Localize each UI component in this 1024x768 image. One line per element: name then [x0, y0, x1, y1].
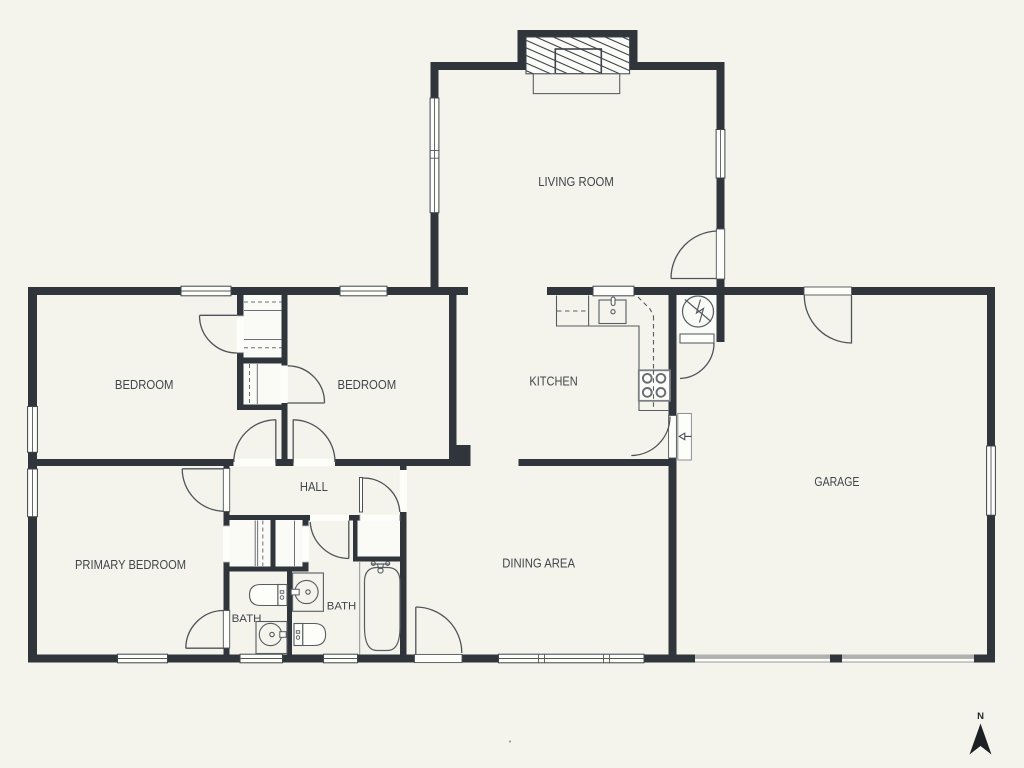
svg-text:BEDROOM: BEDROOM — [115, 377, 174, 392]
svg-text:HALL: HALL — [300, 479, 328, 494]
svg-text:DINING AREA: DINING AREA — [502, 555, 575, 570]
svg-text:BATH: BATH — [232, 613, 262, 625]
svg-text:GARAGE: GARAGE — [814, 474, 859, 489]
svg-text:PRIMARY BEDROOM: PRIMARY BEDROOM — [75, 557, 186, 572]
svg-text:N: N — [977, 711, 984, 722]
svg-text:LIVING ROOM: LIVING ROOM — [538, 174, 614, 189]
svg-text:BEDROOM: BEDROOM — [338, 377, 397, 392]
svg-text:KITCHEN: KITCHEN — [529, 373, 577, 388]
svg-text:BATH: BATH — [327, 601, 356, 613]
